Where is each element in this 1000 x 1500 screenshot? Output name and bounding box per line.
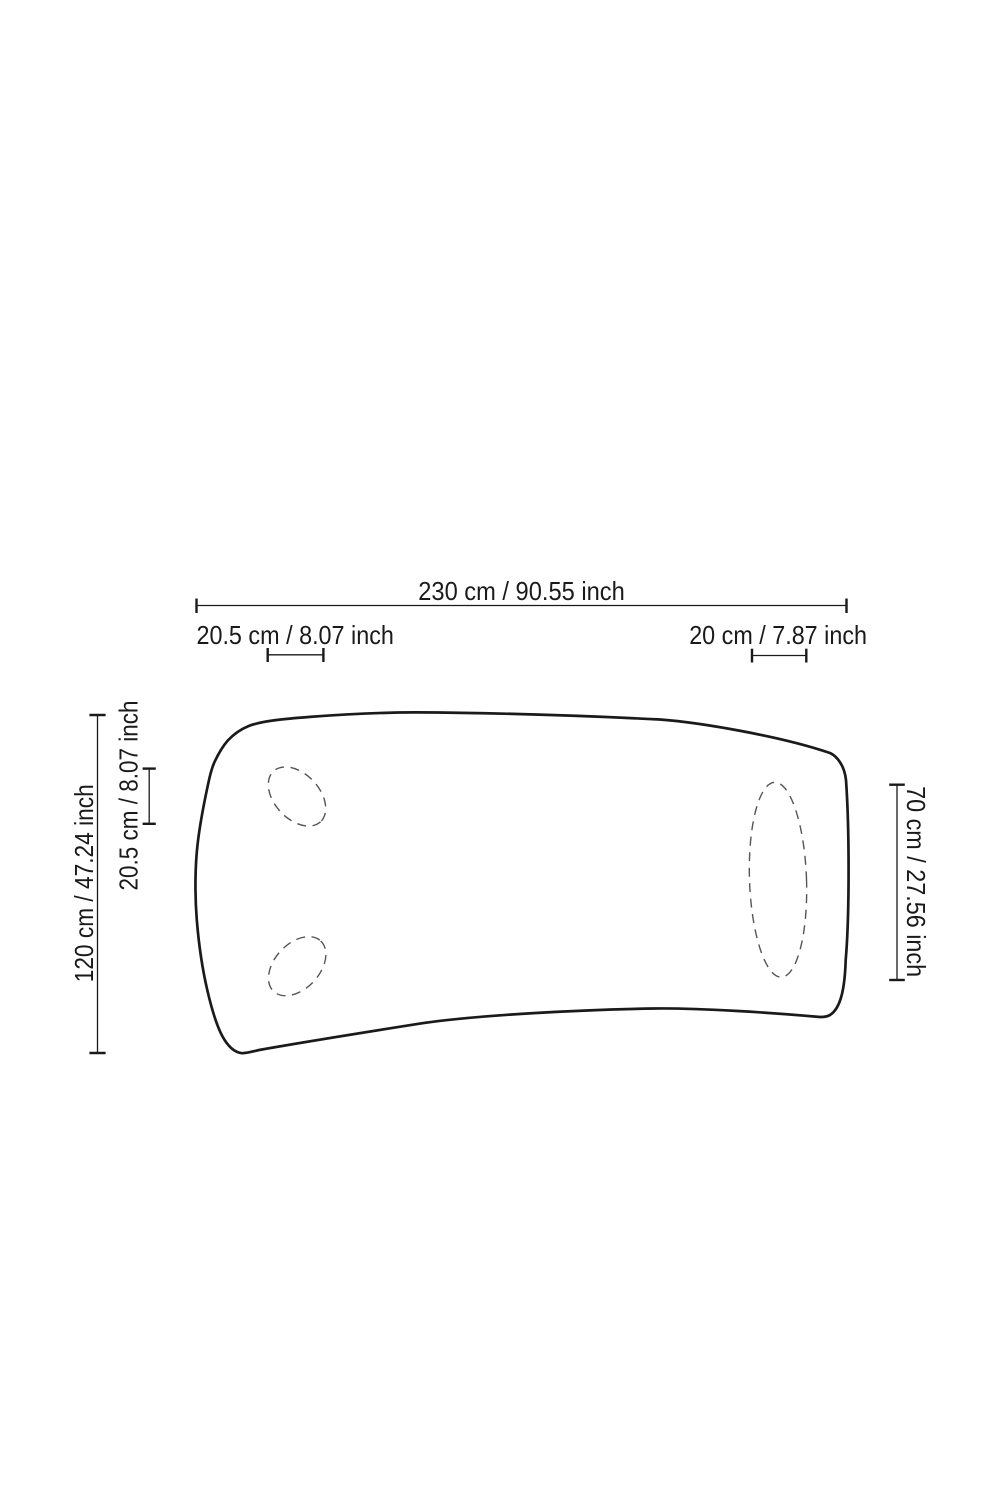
svg-text:230 cm / 90.55 inch: 230 cm / 90.55 inch bbox=[418, 576, 625, 606]
svg-text:20.5 cm / 8.07 inch: 20.5 cm / 8.07 inch bbox=[113, 701, 143, 891]
svg-text:20.5 cm / 8.07 inch: 20.5 cm / 8.07 inch bbox=[196, 620, 394, 650]
svg-text:70 cm / 27.56 inch: 70 cm / 27.56 inch bbox=[901, 786, 931, 977]
svg-text:120 cm / 47.24 inch: 120 cm / 47.24 inch bbox=[69, 784, 99, 982]
svg-text:20 cm / 7.87 inch: 20 cm / 7.87 inch bbox=[689, 620, 867, 650]
